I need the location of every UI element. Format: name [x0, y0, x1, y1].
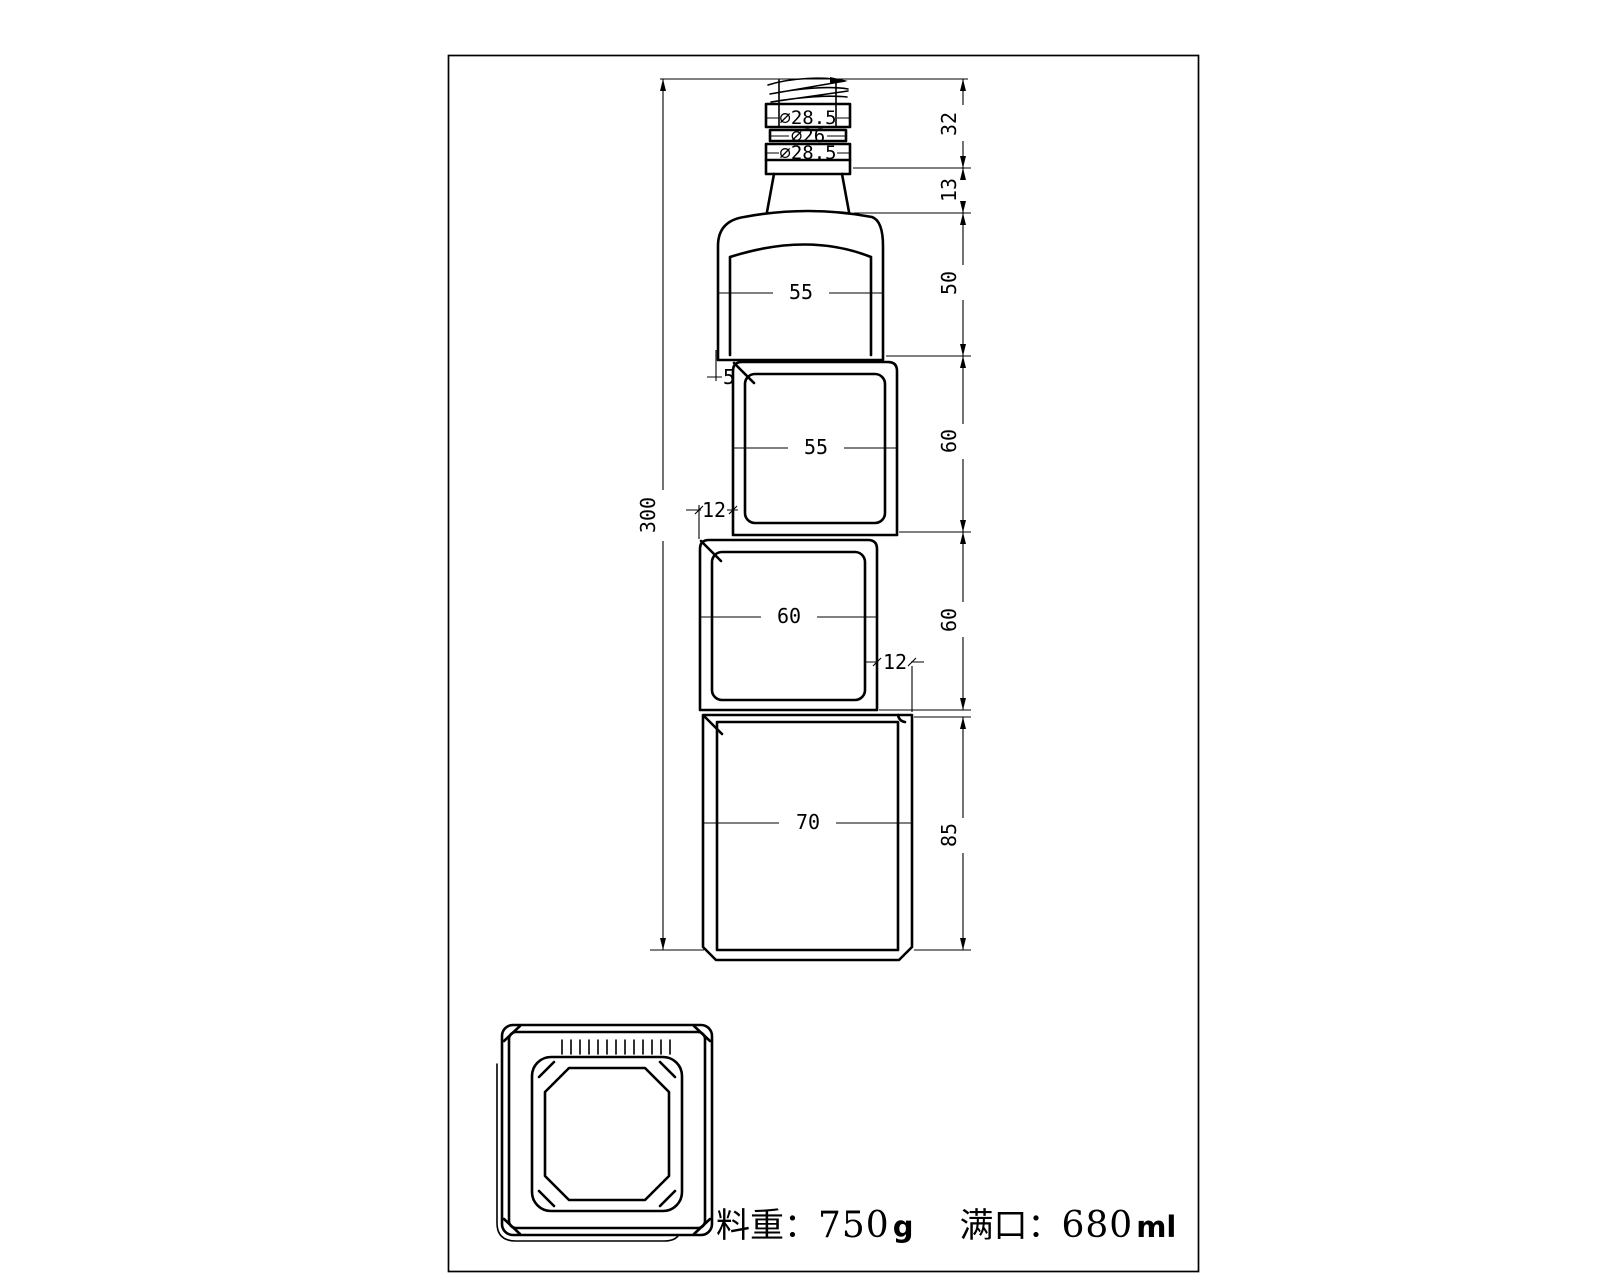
dim-section1-height: 50 [937, 271, 961, 295]
dim-neck-height: 13 [937, 178, 961, 202]
offset-dimensions: 5 12 12 [686, 350, 924, 712]
drawing-border [449, 56, 1199, 1272]
dim-offset-s3-s4: 12 [883, 650, 907, 674]
capacity-unit: ml [1136, 1210, 1176, 1244]
thread-end [830, 77, 848, 84]
dim-overall-height: 300 [636, 497, 660, 533]
top-view-body [532, 1057, 682, 1211]
neck-diameter-labels: ∅28.5 ∅26 ∅28.5 [766, 107, 850, 164]
section-4 [703, 715, 912, 960]
overall-height-dimension: 300 [636, 79, 666, 950]
dim-offset-s2-s3: 12 [702, 498, 726, 522]
neck-cone [767, 174, 849, 212]
dim-section4-width: 70 [796, 810, 820, 834]
top-view-shadow-outline [497, 1064, 678, 1241]
cad-drawing: 32 13 50 60 60 85 300 ∅28.5 ∅26 ∅28.5 55 [0, 0, 1600, 1280]
dim-section2-width: 55 [804, 435, 828, 459]
dim-section2-height: 60 [937, 429, 961, 453]
footer-note: 料重：750g满口：680ml [716, 1198, 1176, 1247]
dim-neck-diameter-bottom: ∅28.5 [779, 142, 836, 164]
dim-section3-width: 60 [777, 604, 801, 628]
weight-value: 750 [818, 1205, 890, 1246]
top-view-hatch-marks [562, 1040, 670, 1054]
top-view [497, 1025, 712, 1241]
right-dimension-chain: 32 13 50 60 60 85 [937, 79, 966, 950]
dimensions: 32 13 50 60 60 85 300 ∅28.5 ∅26 ∅28.5 55 [636, 79, 971, 950]
weight-unit: g [893, 1210, 914, 1244]
drawing-canvas: 32 13 50 60 60 85 300 ∅28.5 ∅26 ∅28.5 55 [0, 0, 1600, 1280]
weight-label: 料重： [716, 1198, 818, 1247]
dim-thread-height: 32 [937, 112, 961, 136]
dim-section1-width: 55 [789, 280, 813, 304]
capacity-value: 680 [1061, 1205, 1133, 1246]
dim-offset-s1-s2: 5 [723, 365, 735, 389]
dim-section4-height: 85 [937, 823, 961, 847]
capacity-label: 满口： [959, 1198, 1061, 1247]
dim-section3-height: 60 [937, 608, 961, 632]
